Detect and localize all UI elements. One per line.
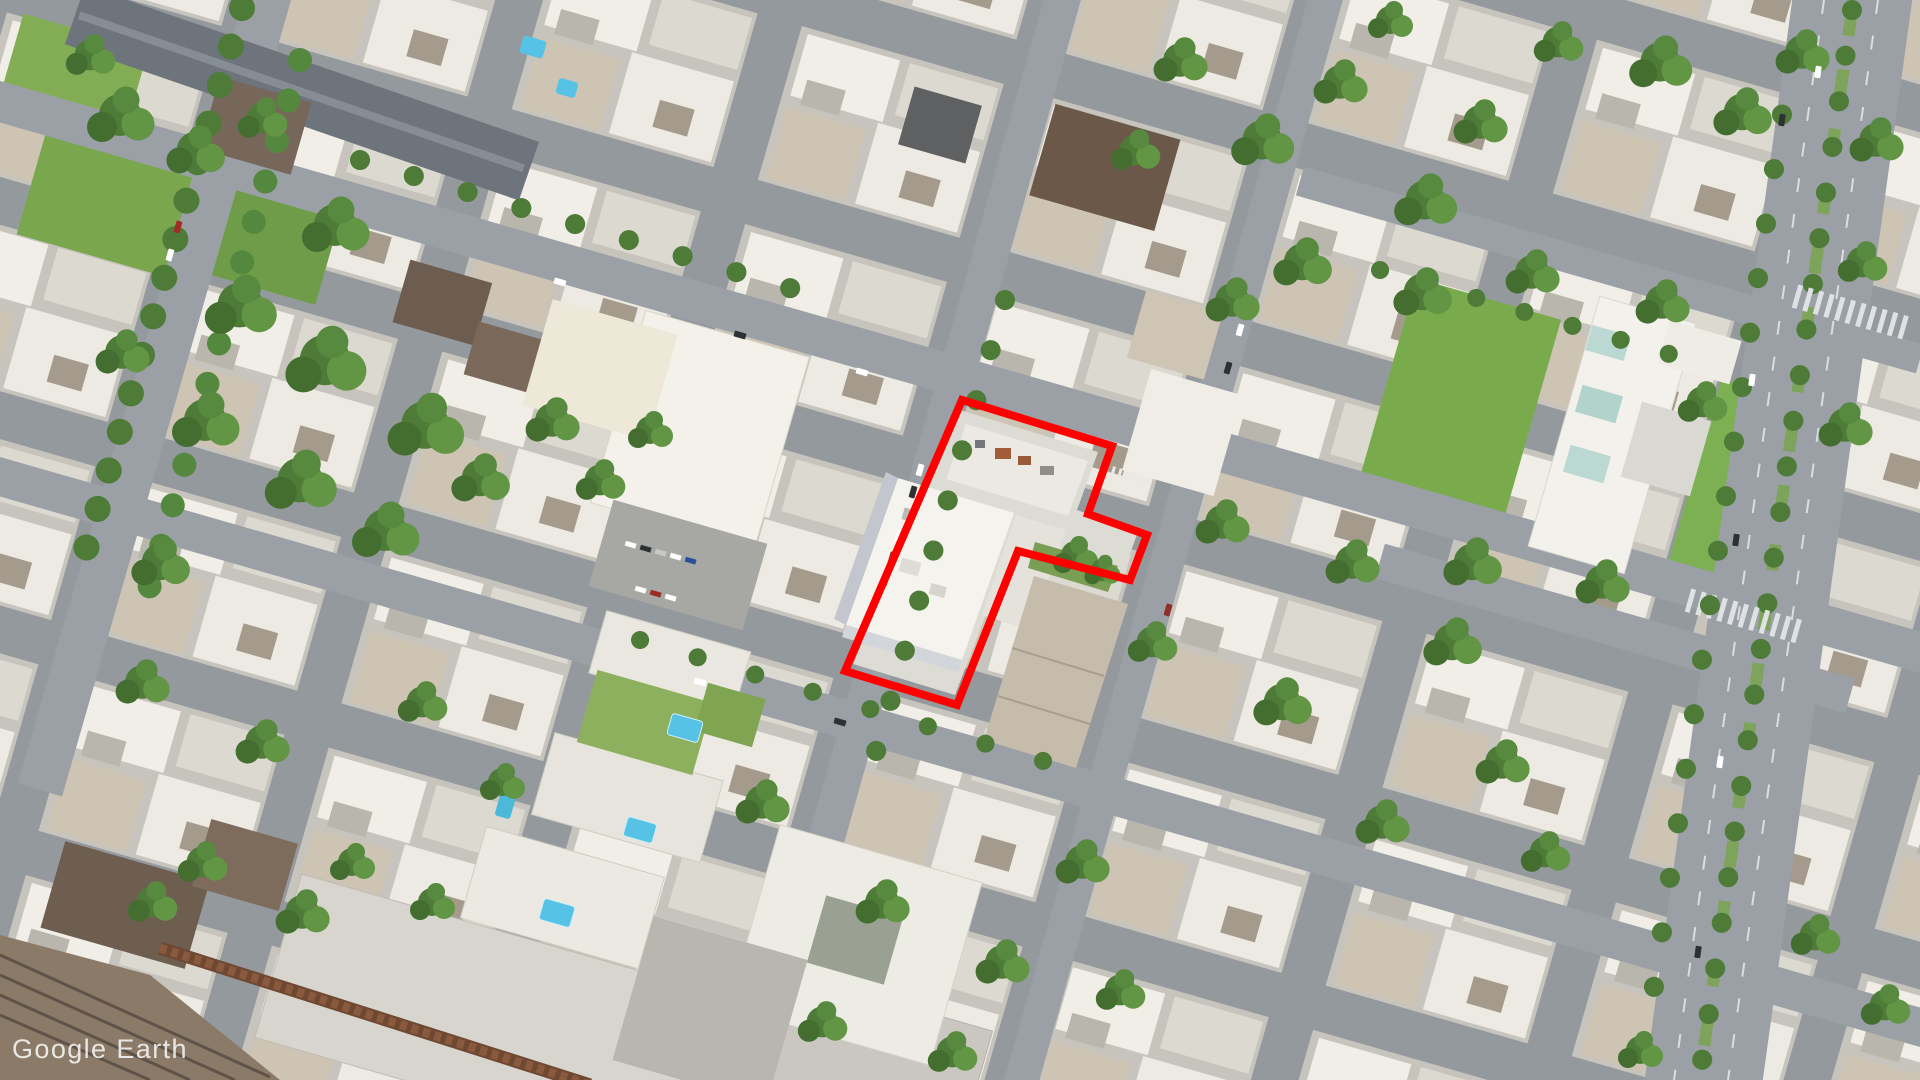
rooftop-unit [1018, 456, 1031, 465]
google-earth-watermark: Google Earth [12, 1034, 188, 1064]
aerial-map[interactable]: Google Earth [0, 0, 1920, 1080]
rooftop-unit [995, 448, 1011, 459]
rooftop-unit [975, 440, 985, 448]
map-canvas[interactable]: Google Earth [0, 0, 1920, 1080]
rooftop-unit [1040, 466, 1054, 475]
